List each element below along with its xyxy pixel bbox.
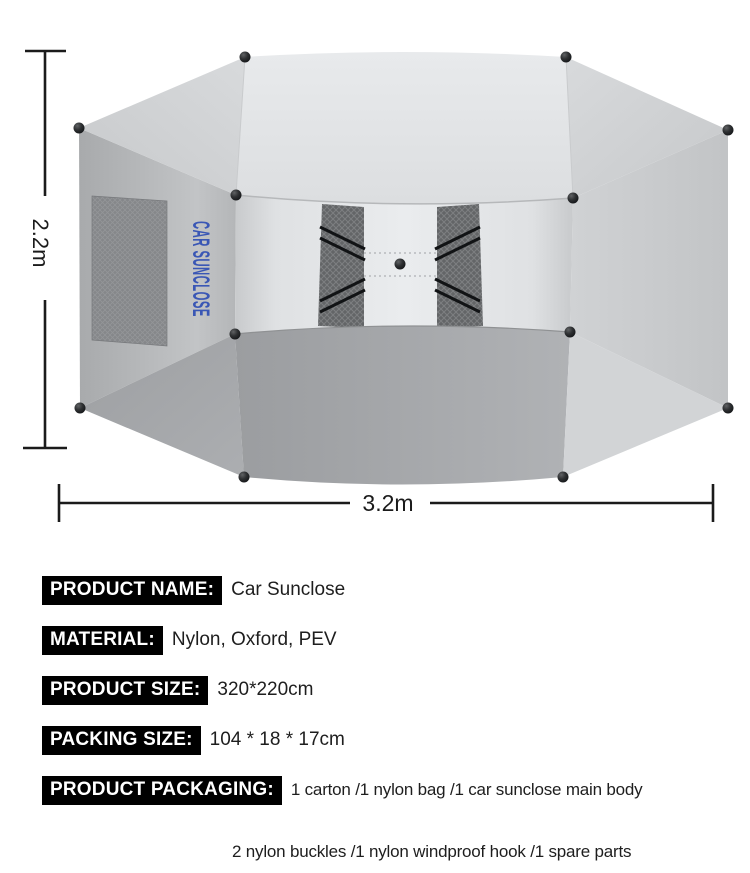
corner-knob: [723, 125, 734, 136]
spec-row-product-packaging: PRODUCT PACKAGING: 1 carton /1 nylon bag…: [42, 765, 750, 815]
spec-row-product-name: PRODUCT NAME: Car Sunclose: [42, 565, 750, 615]
corner-knob: [558, 472, 569, 483]
spec-label-badge: MATERIAL:: [42, 626, 163, 655]
corner-knob: [231, 190, 242, 201]
product-diagram: CAR SUNCLOSE: [0, 0, 750, 560]
product-infographic: CAR SUNCLOSE: [0, 0, 750, 873]
canopy: CAR SUNCLOSE: [74, 52, 734, 485]
mesh-window: [92, 196, 167, 346]
canopy-skirt-center: [235, 326, 570, 485]
corner-knob: [74, 123, 85, 134]
corner-knob: [568, 193, 579, 204]
width-label: 3.2m: [362, 490, 413, 516]
spec-row-material: MATERIAL: Nylon, Oxford, PEV: [42, 615, 750, 665]
spec-value: 1 carton /1 nylon bag /1 car sunclose ma…: [291, 780, 643, 800]
spec-label-badge: PRODUCT NAME:: [42, 576, 222, 605]
spec-value: 104 * 18 * 17cm: [210, 729, 345, 751]
spec-value: 320*220cm: [217, 679, 313, 701]
spec-row-product-size: PRODUCT SIZE: 320*220cm: [42, 665, 750, 715]
spec-label-badge: PRODUCT PACKAGING:: [42, 776, 282, 805]
spec-label-badge: PACKING SIZE:: [42, 726, 201, 755]
canopy-roof-center: [236, 52, 573, 204]
canopy-brand-text: CAR SUNCLOSE: [188, 221, 215, 317]
center-button-knob: [395, 259, 406, 270]
spec-value: Car Sunclose: [231, 579, 345, 601]
front-mesh-panel-left: [318, 204, 365, 328]
corner-knob: [561, 52, 572, 63]
front-mesh-panel-right: [435, 204, 483, 328]
corner-knob: [240, 52, 251, 63]
spec-value: Nylon, Oxford, PEV: [172, 629, 337, 651]
spec-row-packing-size: PACKING SIZE: 104 * 18 * 17cm: [42, 715, 750, 765]
spec-list: PRODUCT NAME: Car Sunclose MATERIAL: Nyl…: [0, 560, 750, 863]
spec-row-packaging-continued: 2 nylon buckles /1 nylon windproof hook …: [232, 841, 750, 863]
corner-knob: [230, 329, 241, 340]
corner-knob: [565, 327, 576, 338]
height-label: 2.2m: [28, 219, 53, 268]
corner-knob: [723, 403, 734, 414]
corner-knob: [239, 472, 250, 483]
corner-knob: [75, 403, 86, 414]
spec-label-badge: PRODUCT SIZE:: [42, 676, 208, 705]
